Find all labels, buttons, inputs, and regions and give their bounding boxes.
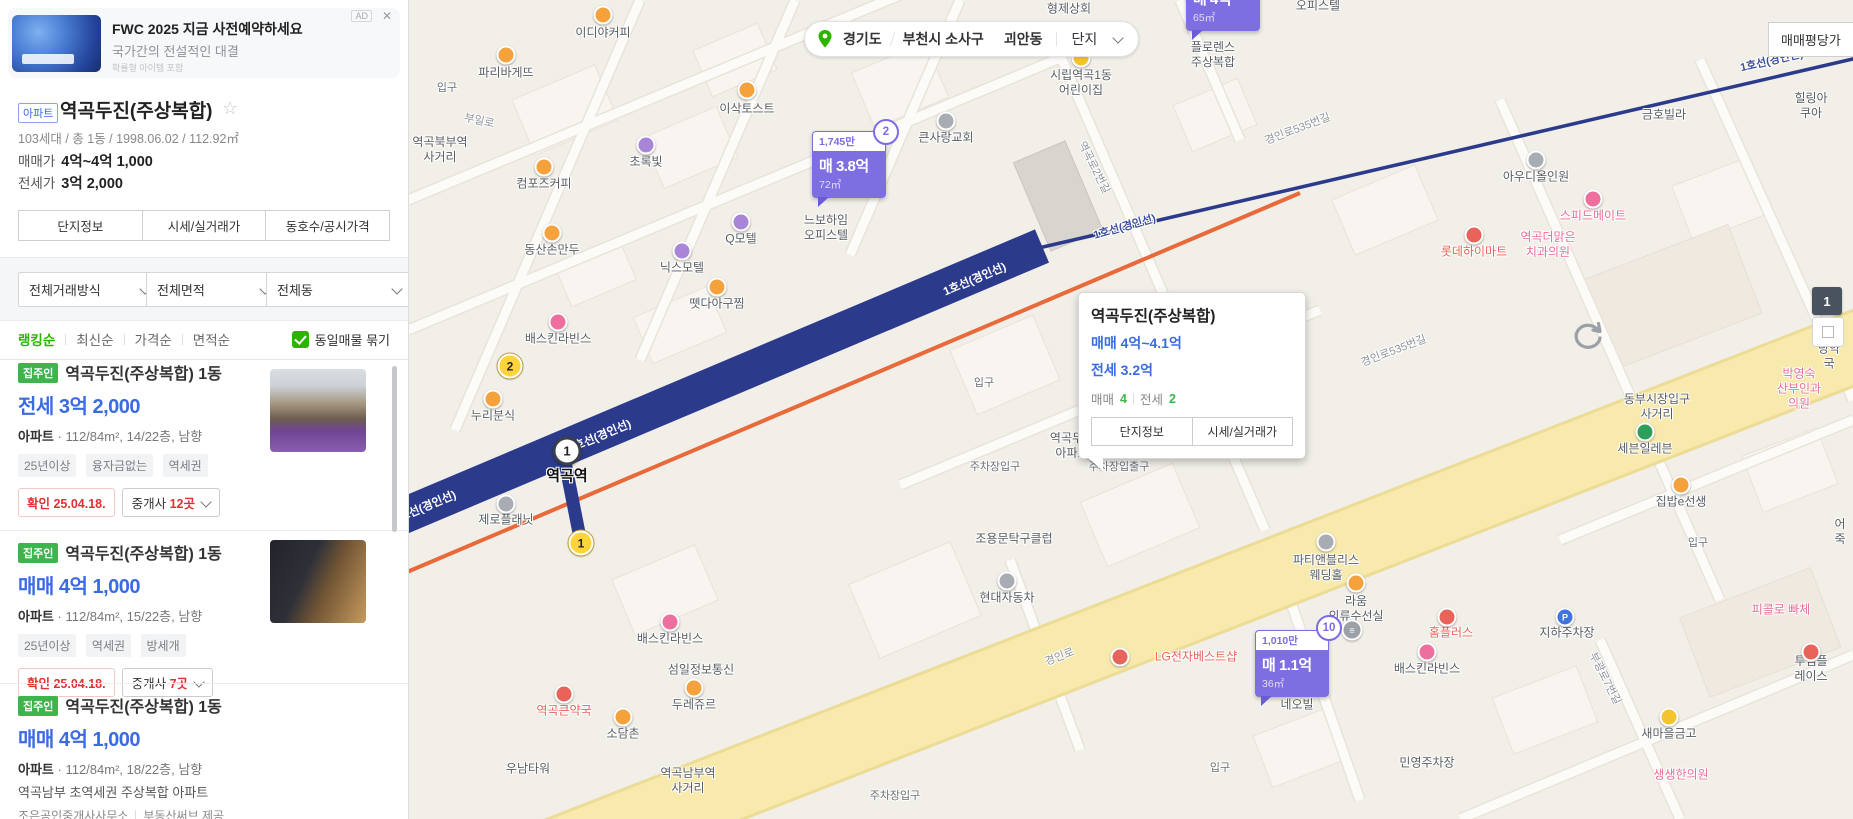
map-label: LG전자베스트샵 [1155, 650, 1237, 665]
map-label: Q모텔 [725, 232, 756, 247]
group-duplicates-checkbox[interactable]: 동일매물 묶기 [292, 330, 390, 349]
map-label: 아우디올인원 [1503, 170, 1569, 185]
listing-price: 4억 1,000 [59, 729, 140, 751]
price-marker[interactable]: 1,010만 매 1.1억 36㎡ [1255, 630, 1329, 697]
listing-title: 역곡두진(주상복합) 1동 [65, 699, 221, 716]
wedding-icon [1317, 533, 1336, 552]
breadcrumb-province[interactable]: 경기도 [833, 29, 892, 49]
owner-badge: 집주인 [18, 363, 58, 383]
map-label: 입구 [1210, 762, 1230, 776]
map-label: 이디야커피 [575, 26, 630, 41]
marker-tail [818, 197, 829, 207]
map-label: 동부시장입구 사거리 [1624, 392, 1690, 422]
map-label: 동산손만두 [524, 243, 579, 258]
sidebar-scrollbar[interactable] [392, 366, 397, 532]
owner-badge: 집주인 [18, 696, 58, 716]
sale-price-label: 매매가 [18, 154, 55, 169]
map-label: 네오빌 [1280, 698, 1313, 713]
filter-trade-type-select[interactable]: 전체거래방식 [18, 272, 160, 307]
map-rotate-icon[interactable] [1570, 318, 1606, 354]
property-title: 역곡두진(주상복합) [60, 96, 213, 123]
restaurant-icon [543, 224, 562, 243]
map-label: 플로렌스 주상복합 [1191, 40, 1235, 70]
map-label: 두레쥬르 [672, 698, 716, 713]
restaurant-icon [614, 708, 633, 727]
listing-card[interactable]: 집주인역곡두진(주상복합) 1동 매매 4억 1,000 아파트 · 112/8… [0, 530, 408, 697]
ad-subtitle: 국가간의 전설적인 대결 [112, 41, 239, 60]
map-label: 생생한의원 [1653, 768, 1708, 783]
popup-sale-price: 매매 4억~4.1억 [1091, 333, 1293, 353]
marker-area: 72㎡ [819, 177, 879, 192]
shop-icon [1347, 574, 1366, 593]
toast-icon [738, 81, 757, 100]
filter-building-select[interactable]: 전체동 [266, 272, 409, 307]
map-label: 입구 [974, 377, 994, 391]
location-pin-icon [817, 29, 833, 49]
listing-title: 역곡두진(주상복합) 1동 [65, 546, 221, 563]
map-label: 현대자동차 [979, 591, 1034, 606]
breadcrumb-district[interactable]: 괴안동 [994, 29, 1053, 49]
confirm-date-badge: 확인 25.04.18. [18, 488, 115, 517]
map-label: 역곡큰약국 [536, 704, 591, 719]
filter-area-select[interactable]: 전체면적 [146, 272, 280, 307]
map-label: 소담촌 [606, 727, 639, 742]
map-label: 우남타워 [506, 762, 550, 777]
map-label: 스피드메이트 [1560, 209, 1626, 224]
price-unit-dropdown[interactable]: 매매평당가 [1768, 22, 1853, 57]
station-number-badge: 1 [553, 437, 582, 466]
sort-price[interactable]: 가격순 [135, 329, 172, 349]
map-label: 제로플래닛 [478, 513, 533, 528]
price-marker[interactable]: 1,745만 매 3.8억 72㎡ [812, 131, 886, 198]
map-label: 조용문탁구클럽 [975, 532, 1052, 547]
ad-disclaimer: 확률형 아이템 포함 [112, 61, 183, 74]
ad-thumbnail [12, 15, 101, 72]
popup-complex-info-button[interactable]: 단지정보 [1091, 417, 1193, 446]
property-info: 103세대 / 총 1동 / 1998.06.02 / 112.92㎡ [18, 128, 239, 147]
map-label: 역곡북부역 사거리 [412, 135, 467, 165]
chevron-down-icon [200, 496, 211, 507]
chevron-down-icon [1113, 32, 1124, 43]
breadcrumb-type-dropdown[interactable]: 단지 [1061, 29, 1107, 49]
map-label: 오피스텔 [1296, 0, 1340, 14]
map-label: 입구 [437, 82, 457, 96]
car-icon [998, 572, 1017, 591]
listing-kind: 아파트 [18, 762, 54, 777]
listing-agency: 조은공인중개사사무소 [18, 809, 128, 819]
tab-price-history[interactable]: 시세/실거래가 [142, 210, 267, 241]
ad-banner[interactable]: FWC 2025 지금 사전예약하세요 국가간의 전설적인 대결 확률형 아이템… [8, 8, 400, 78]
popup-price-history-button[interactable]: 시세/실거래가 [1192, 417, 1294, 446]
popup-jeonse-count-label: 전세 [1140, 389, 1163, 408]
map-label: 민영주차장 [1399, 756, 1454, 771]
sort-newest[interactable]: 최신순 [76, 329, 113, 349]
listing-tag: 역세권 [163, 454, 208, 477]
poi-icon [497, 495, 516, 514]
exit-number-badge: 2 [498, 354, 523, 379]
checkbox-checked-icon [292, 331, 309, 348]
listing-photo[interactable] [270, 369, 366, 452]
marker-tail [1261, 696, 1272, 706]
poi-icon [1527, 151, 1546, 170]
ad-close-icon[interactable]: ✕ [382, 9, 392, 23]
marker-area: 65㎡ [1193, 10, 1253, 25]
chevron-down-icon [391, 283, 402, 294]
owner-badge: 집주인 [18, 543, 58, 563]
map-label: 입구 [1688, 537, 1708, 551]
listing-details: · 112/84m², 15/22층, 남향 [54, 609, 202, 624]
sort-row: 랭킹순 최신순 가격순 면적순 동일매물 묶기 [0, 319, 408, 360]
restaurant-icon [484, 390, 503, 409]
marker-area: 36㎡ [1262, 676, 1322, 691]
popup-tail [1087, 457, 1103, 471]
icecream-icon [661, 613, 680, 632]
property-type-badge: 아파트 [18, 103, 58, 123]
map-label: 초록빛 [629, 155, 662, 170]
property-tabs: 단지정보 시세/실거래가 동호수/공시가격 [18, 210, 390, 241]
convenience-icon [1636, 423, 1655, 442]
panel-toggle-button[interactable]: 1 [1812, 287, 1842, 315]
map-label: 집밥e선생 [1656, 495, 1707, 510]
marker-count-badge[interactable]: 10 [1316, 615, 1342, 641]
listing-price-type: 매매 [18, 576, 54, 598]
parking-icon: P [1556, 608, 1575, 627]
sale-price-value: 4억~4억 1,000 [61, 154, 153, 170]
listing-kind: 아파트 [18, 609, 54, 624]
jeonse-price-value: 3억 2,000 [61, 176, 123, 192]
sort-ranking[interactable]: 랭킹순 [18, 329, 55, 349]
popup-sale-count-label: 매매 [1091, 389, 1114, 408]
marker-tail [1192, 30, 1203, 40]
map-label: 파리바게뜨 [478, 66, 533, 81]
marker-price: 매 3.8억 [819, 155, 879, 176]
map-label: 힐링아쿠아 [1790, 91, 1832, 121]
panel-secondary-button[interactable] [1812, 317, 1844, 347]
marker-price: 매 1.1억 [1262, 654, 1322, 675]
map-label: 시립역곡1동 어린이집 [1050, 68, 1112, 98]
listing-card[interactable]: 집주인역곡두진(주상복합) 1동 매매 4억 1,000 아파트 · 112/8… [0, 683, 408, 819]
sidebar: FWC 2025 지금 사전예약하세요 국가간의 전설적인 대결 확률형 아이템… [0, 0, 409, 819]
bank-icon [1660, 708, 1679, 727]
map-label: 새마을금고 [1641, 727, 1696, 742]
homeplus-icon [1438, 608, 1457, 627]
motel-icon [732, 213, 751, 232]
bakery-icon [497, 46, 516, 65]
pharmacy-icon [555, 685, 574, 704]
listing-tag: 방세개 [141, 634, 186, 657]
electronics-icon [1111, 648, 1130, 667]
bakery-icon [685, 679, 704, 698]
popup-title: 역곡두진(주상복합) [1091, 304, 1293, 326]
motel-icon [673, 242, 692, 261]
map-label: 역곡역 [546, 468, 587, 487]
listing-tag: 25년이상 [18, 454, 76, 477]
listing-card[interactable]: 집주인역곡두진(주상복합) 1동 전세 3억 2,000 아파트 · 112/8… [0, 360, 408, 517]
cluster-more-icon[interactable]: ≡ [1342, 620, 1363, 641]
church-icon [937, 112, 956, 131]
map-label: 느보하임 오피스텔 [804, 213, 848, 243]
map-label: 역곡남부역 사거리 [660, 766, 715, 796]
map-label: 배스킨라빈스 [525, 332, 591, 347]
layers-icon [1822, 326, 1834, 338]
agents-dropdown[interactable]: 중개사 12곳 [122, 488, 220, 517]
map-label: 박영숙 산부인과의원 [1772, 367, 1826, 412]
map-label: 배스킨라빈스 [637, 632, 703, 647]
motel-icon [637, 136, 656, 155]
map-label: 누리분식 [471, 409, 515, 424]
breadcrumb: 경기도 부천시 소사구 괴안동 단지 [804, 21, 1139, 57]
map-label: 뗏다아구찜 [689, 297, 744, 312]
map-label: 롯데하이마트 [1441, 245, 1507, 260]
railway-branch [563, 452, 581, 543]
listing-price-type: 전세 [18, 396, 54, 418]
map-label: 세븐일레븐 [1617, 442, 1672, 457]
ad-badge: AD [351, 10, 372, 22]
listing-source: 부동산써브 제공 [143, 809, 224, 819]
map-label: 닉스모텔 [660, 261, 704, 276]
marker-price: 매 4억 [1193, 0, 1253, 9]
listing-details: · 112/84m², 18/22층, 남향 [54, 762, 202, 777]
listing-tag: 25년이상 [18, 634, 76, 657]
listing-price: 4억 1,000 [59, 576, 140, 598]
listing-details: · 112/84m², 14/22층, 남향 [54, 429, 202, 444]
favorite-star-icon[interactable]: ☆ [222, 98, 238, 119]
exit-number-badge: 1 [569, 531, 594, 556]
map-label: 이삭토스트 [719, 102, 774, 117]
cafe-icon [594, 6, 613, 25]
himart-icon [1465, 226, 1484, 245]
icecream-icon [549, 313, 568, 332]
listing-tag: 역세권 [86, 634, 131, 657]
map-label: 큰사랑교회 [918, 131, 973, 146]
map-label: 역곡더맑은 치과의원 [1520, 230, 1575, 260]
carcare-icon [1584, 190, 1603, 209]
listing-title: 역곡두진(주상복합) 1동 [65, 366, 221, 383]
sort-area[interactable]: 면적순 [193, 329, 230, 349]
price-unit-label: 매매평당가 [1781, 30, 1841, 49]
map-label: 주차장입구 [870, 790, 921, 804]
cafe-icon [535, 158, 554, 177]
map-label: 홈플러스 [1429, 626, 1473, 641]
icecream-icon [1418, 643, 1437, 662]
listing-kind: 아파트 [18, 429, 54, 444]
map-label: 어죽 [1834, 517, 1847, 547]
map-label: 주차장입구 [970, 461, 1021, 475]
tab-complex-info[interactable]: 단지정보 [18, 210, 143, 241]
map-label: 금호빌라 [1642, 108, 1686, 123]
jeonse-price-label: 전세가 [18, 176, 55, 191]
ad-title: FWC 2025 지금 사전예약하세요 [112, 19, 303, 39]
map-label: 지하주차장 [1539, 626, 1594, 641]
listing-price-type: 매매 [18, 729, 54, 751]
restaurant-icon [708, 278, 727, 297]
listing-photo[interactable] [270, 540, 366, 623]
popup-jeonse-price: 전세 3.2억 [1091, 360, 1293, 380]
filter-band: 전체거래방식 전체면적 전체동 [0, 257, 408, 321]
listing-price: 3억 2,000 [59, 396, 140, 418]
tab-unit-public-price[interactable]: 동호수/공시가격 [265, 210, 390, 241]
popup-sale-count: 4 [1120, 392, 1127, 406]
map-label: 피콜로 빠체 [1752, 603, 1811, 618]
listing-description: 역곡남부 초역세권 주상복합 아파트 [18, 782, 408, 801]
map-label: 컴포즈커피 [516, 177, 571, 192]
breadcrumb-city[interactable]: 부천시 소사구 [893, 29, 994, 49]
breadcrumb-divider [1056, 32, 1057, 46]
divider [1133, 393, 1134, 404]
price-marker[interactable]: 매 4억 65㎡ [1186, 0, 1260, 31]
cafe-icon [1802, 643, 1821, 662]
popup-jeonse-count: 2 [1169, 392, 1176, 406]
map-label: 형제상회 [1047, 2, 1091, 17]
map-label: 섬일정보통신 [668, 663, 734, 678]
marker-count-badge[interactable]: 2 [873, 119, 899, 145]
listing-tag: 융자금없는 [86, 454, 153, 477]
restaurant-icon [1672, 476, 1691, 495]
map-label: 배스킨라빈스 [1394, 662, 1460, 677]
complex-popup: 역곡두진(주상복합) 매매 4억~4.1억 전세 3.2억 매매 4 전세 2 … [1078, 292, 1306, 459]
